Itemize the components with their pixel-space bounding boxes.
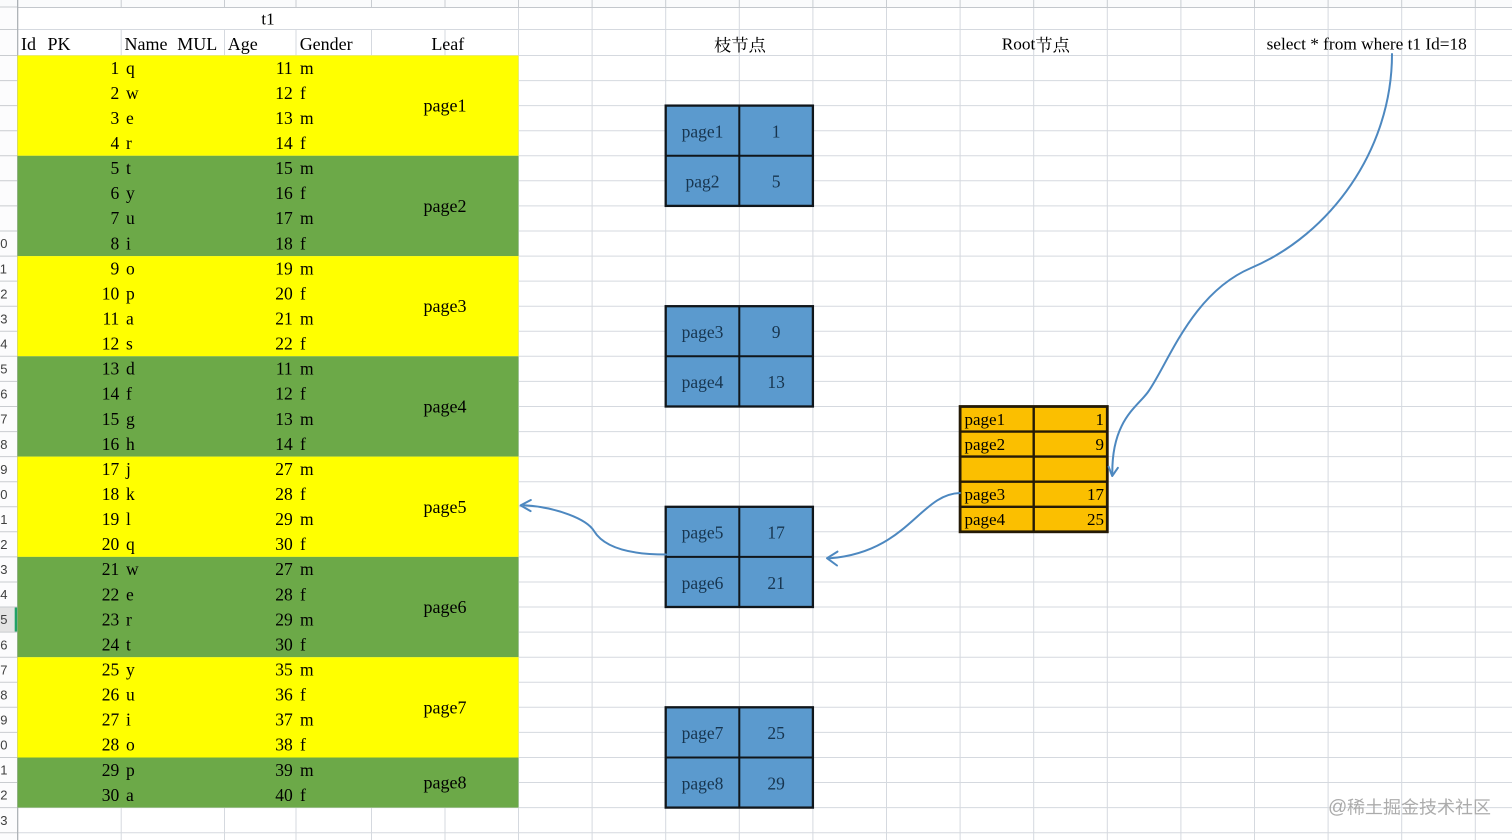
svg-text:13: 13: [767, 372, 785, 392]
svg-text:page7: page7: [424, 697, 467, 717]
svg-text:3: 3: [111, 108, 120, 128]
svg-text:14: 14: [0, 337, 7, 352]
svg-text:26: 26: [102, 685, 120, 705]
svg-text:11: 11: [276, 359, 293, 379]
svg-text:q: q: [126, 58, 135, 78]
svg-text:12: 12: [0, 286, 7, 301]
svg-text:7: 7: [111, 208, 120, 228]
svg-text:10: 10: [0, 236, 7, 251]
svg-text:Id: Id: [21, 34, 36, 54]
svg-text:9: 9: [772, 322, 781, 342]
svg-text:q: q: [126, 534, 135, 554]
svg-text:19: 19: [102, 509, 120, 529]
svg-text:PK: PK: [48, 34, 71, 54]
svg-text:27: 27: [275, 459, 293, 479]
svg-text:pag2: pag2: [685, 172, 719, 192]
svg-text:20: 20: [102, 534, 120, 554]
svg-text:29: 29: [275, 609, 293, 629]
svg-text:f: f: [300, 384, 306, 404]
svg-text:16: 16: [102, 434, 120, 454]
svg-text:29: 29: [102, 760, 120, 780]
svg-text:m: m: [300, 760, 314, 780]
svg-text:22: 22: [275, 334, 293, 354]
svg-text:k: k: [126, 484, 135, 504]
svg-text:11: 11: [276, 58, 293, 78]
svg-text:f: f: [300, 534, 306, 554]
svg-text:m: m: [300, 359, 314, 379]
svg-text:f: f: [300, 83, 306, 103]
svg-text:Name: Name: [125, 34, 168, 54]
svg-text:r: r: [126, 133, 132, 153]
svg-text:f: f: [300, 685, 306, 705]
svg-text:11: 11: [102, 309, 119, 329]
svg-text:22: 22: [0, 537, 7, 552]
svg-text:12: 12: [275, 384, 293, 404]
svg-text:f: f: [300, 334, 306, 354]
svg-text:28: 28: [102, 735, 120, 755]
svg-text:page1: page1: [965, 410, 1006, 429]
svg-text:14: 14: [275, 133, 293, 153]
svg-text:page1: page1: [682, 122, 724, 142]
svg-text:21: 21: [767, 573, 785, 593]
svg-text:13: 13: [275, 108, 293, 128]
svg-text:page3: page3: [682, 322, 724, 342]
svg-text:Gender: Gender: [300, 34, 353, 54]
svg-text:25: 25: [767, 723, 785, 743]
svg-text:page3: page3: [424, 296, 467, 316]
svg-text:13: 13: [0, 311, 7, 326]
svg-text:m: m: [300, 710, 314, 730]
svg-text:27: 27: [0, 662, 7, 677]
svg-text:m: m: [300, 660, 314, 680]
svg-text:37: 37: [275, 710, 293, 730]
svg-text:15: 15: [275, 158, 293, 178]
svg-text:18: 18: [0, 437, 7, 452]
svg-text:26: 26: [0, 637, 7, 652]
svg-text:17: 17: [275, 208, 293, 228]
svg-text:18: 18: [275, 233, 293, 253]
svg-text:y: y: [126, 660, 135, 680]
svg-text:30: 30: [275, 534, 293, 554]
svg-text:20: 20: [0, 487, 7, 502]
svg-text:page4: page4: [965, 510, 1006, 529]
svg-text:m: m: [300, 309, 314, 329]
svg-text:29: 29: [767, 773, 785, 793]
svg-text:14: 14: [102, 384, 120, 404]
svg-text:36: 36: [275, 685, 293, 705]
svg-text:28: 28: [0, 687, 7, 702]
svg-text:13: 13: [275, 409, 293, 429]
svg-text:32: 32: [0, 788, 7, 803]
svg-text:select * from where t1 Id=18: select * from where t1 Id=18: [1267, 35, 1467, 54]
svg-text:21: 21: [102, 559, 120, 579]
svg-text:f: f: [300, 634, 306, 654]
svg-text:l: l: [126, 509, 131, 529]
svg-text:m: m: [300, 609, 314, 629]
svg-text:11: 11: [0, 261, 7, 276]
svg-text:21: 21: [0, 512, 7, 527]
svg-text:17: 17: [0, 412, 7, 427]
svg-text:page4: page4: [682, 372, 724, 392]
svg-text:13: 13: [102, 359, 120, 379]
svg-text:i: i: [126, 233, 131, 253]
svg-text:23: 23: [0, 562, 7, 577]
svg-text:d: d: [126, 359, 135, 379]
svg-text:m: m: [300, 108, 314, 128]
svg-text:m: m: [300, 409, 314, 429]
svg-text:p: p: [126, 283, 135, 303]
svg-text:o: o: [126, 735, 135, 755]
svg-text:40: 40: [275, 785, 293, 805]
svg-text:page2: page2: [965, 435, 1006, 454]
svg-text:17: 17: [102, 459, 120, 479]
svg-text:18: 18: [102, 484, 120, 504]
svg-text:f: f: [300, 283, 306, 303]
svg-text:f: f: [300, 133, 306, 153]
svg-text:o: o: [126, 258, 135, 278]
svg-text:page4: page4: [424, 397, 467, 417]
svg-text:21: 21: [275, 309, 293, 329]
svg-text:f: f: [300, 584, 306, 604]
svg-text:u: u: [126, 208, 135, 228]
svg-text:30: 30: [275, 634, 293, 654]
svg-text:t: t: [126, 634, 131, 654]
svg-text:a: a: [126, 785, 134, 805]
svg-text:24: 24: [0, 587, 7, 602]
svg-text:31: 31: [0, 763, 7, 778]
svg-text:10: 10: [102, 283, 120, 303]
svg-text:28: 28: [275, 584, 293, 604]
svg-text:h: h: [126, 434, 135, 454]
svg-text:19: 19: [0, 462, 7, 477]
svg-text:f: f: [126, 384, 132, 404]
svg-text:35: 35: [275, 660, 293, 680]
svg-text:27: 27: [275, 559, 293, 579]
svg-text:9: 9: [1096, 435, 1105, 454]
svg-text:f: f: [300, 233, 306, 253]
svg-text:u: u: [126, 685, 135, 705]
svg-text:16: 16: [275, 183, 293, 203]
svg-text:r: r: [126, 609, 132, 629]
svg-text:1: 1: [111, 58, 120, 78]
svg-text:page8: page8: [424, 773, 467, 793]
svg-text:2: 2: [111, 83, 120, 103]
svg-text:m: m: [300, 509, 314, 529]
svg-text:17: 17: [1087, 485, 1105, 504]
svg-text:16: 16: [0, 387, 7, 402]
svg-text:m: m: [300, 258, 314, 278]
svg-text:e: e: [126, 108, 134, 128]
svg-text:33: 33: [0, 813, 7, 828]
svg-text:30: 30: [0, 738, 7, 753]
svg-text:5: 5: [111, 158, 120, 178]
svg-text:t: t: [126, 158, 131, 178]
svg-text:s: s: [126, 334, 133, 354]
svg-text:page7: page7: [682, 723, 724, 743]
svg-text:@: @: [1328, 797, 1347, 818]
svg-text:m: m: [300, 58, 314, 78]
svg-text:25: 25: [102, 660, 120, 680]
svg-text:38: 38: [275, 735, 293, 755]
svg-text:6: 6: [111, 183, 120, 203]
svg-text:29: 29: [275, 509, 293, 529]
svg-text:24: 24: [102, 634, 120, 654]
svg-text:25: 25: [0, 612, 7, 627]
svg-text:page8: page8: [682, 773, 724, 793]
svg-text:m: m: [300, 459, 314, 479]
svg-text:page6: page6: [424, 597, 467, 617]
svg-text:Root: Root: [1002, 35, 1036, 54]
svg-text:15: 15: [102, 409, 120, 429]
svg-text:p: p: [126, 760, 135, 780]
svg-text:a: a: [126, 309, 134, 329]
svg-text:page3: page3: [965, 485, 1006, 504]
svg-text:m: m: [300, 158, 314, 178]
svg-text:w: w: [126, 83, 139, 103]
svg-text:5: 5: [772, 172, 781, 192]
svg-text:e: e: [126, 584, 134, 604]
svg-text:30: 30: [102, 785, 120, 805]
svg-text:17: 17: [767, 523, 785, 543]
svg-text:8: 8: [111, 233, 120, 253]
svg-text:w: w: [126, 559, 139, 579]
svg-text:1: 1: [772, 122, 781, 142]
svg-text:20: 20: [275, 283, 293, 303]
svg-text:page5: page5: [424, 497, 467, 517]
svg-text:j: j: [125, 459, 131, 479]
svg-text:12: 12: [275, 83, 293, 103]
svg-text:f: f: [300, 735, 306, 755]
svg-text:m: m: [300, 208, 314, 228]
svg-text:4: 4: [111, 133, 120, 153]
svg-text:22: 22: [102, 584, 120, 604]
svg-text:page5: page5: [682, 523, 724, 543]
svg-text:25: 25: [1087, 510, 1104, 529]
svg-text:i: i: [126, 710, 131, 730]
svg-text:page6: page6: [682, 573, 724, 593]
svg-text:t1: t1: [261, 10, 274, 29]
svg-text:page1: page1: [424, 96, 467, 116]
svg-text:23: 23: [102, 609, 120, 629]
svg-text:y: y: [126, 183, 135, 203]
svg-text:29: 29: [0, 713, 7, 728]
svg-text:14: 14: [275, 434, 293, 454]
svg-text:g: g: [126, 409, 135, 429]
svg-text:f: f: [300, 183, 306, 203]
svg-text:15: 15: [0, 362, 7, 377]
svg-text:f: f: [300, 434, 306, 454]
svg-text:1: 1: [1096, 410, 1105, 429]
svg-text:39: 39: [275, 760, 293, 780]
svg-text:MUL: MUL: [177, 34, 217, 54]
svg-text:27: 27: [102, 710, 120, 730]
svg-text:Leaf: Leaf: [431, 34, 464, 54]
svg-text:Age: Age: [228, 34, 258, 54]
svg-text:19: 19: [275, 258, 293, 278]
svg-text:12: 12: [102, 334, 120, 354]
svg-text:f: f: [300, 785, 306, 805]
svg-text:28: 28: [275, 484, 293, 504]
svg-text:f: f: [300, 484, 306, 504]
svg-text:m: m: [300, 559, 314, 579]
svg-text:9: 9: [111, 258, 120, 278]
svg-text:page2: page2: [424, 196, 467, 216]
